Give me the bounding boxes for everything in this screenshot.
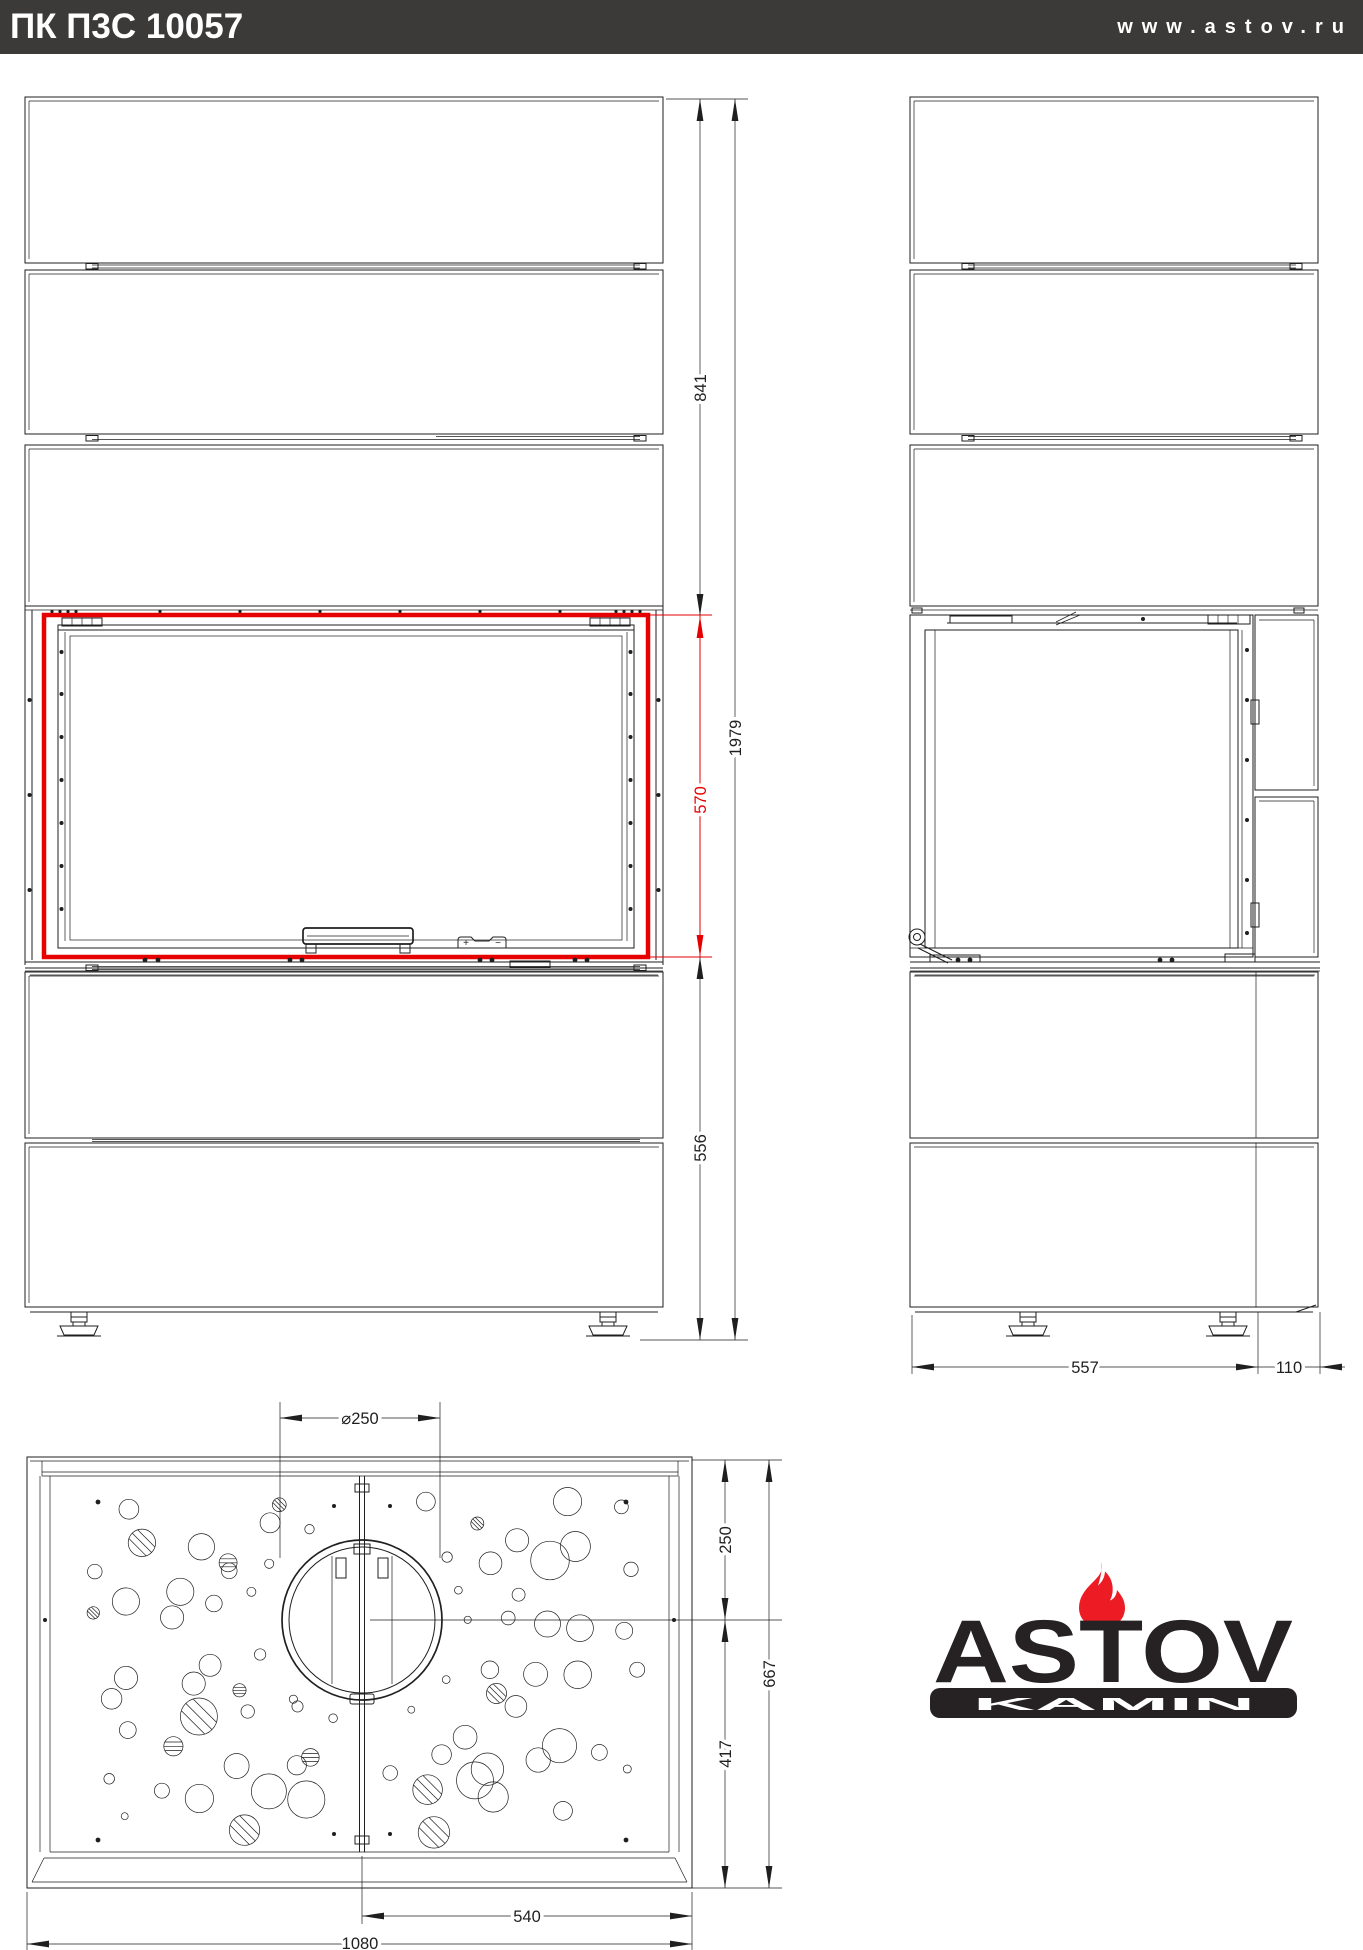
drawing-sheet: ПК П3С 10057 www.astov.ru — [0, 0, 1363, 1950]
dim-front-firebox: 570 — [692, 786, 710, 814]
door-handle — [303, 928, 413, 953]
dim-front-upper: 841 — [692, 374, 710, 402]
side-connectors — [962, 264, 1302, 442]
dim-front-overall: 1979 — [727, 720, 745, 757]
side-door-screws — [1245, 648, 1249, 935]
air-control: + − — [458, 937, 506, 949]
brand-logo: ASTOV KAMIN — [930, 1562, 1297, 1718]
side-view: 557 110 — [909, 97, 1345, 1377]
dim-plan-half-width: 540 — [513, 1908, 541, 1926]
dim-plan-center-to-back: 417 — [717, 1740, 735, 1768]
firebox-front: + − — [25, 606, 663, 975]
plan-view: ⌀250 250 417 667 540 1080 — [27, 1402, 782, 1950]
panel-connectors — [86, 264, 646, 1142]
air-minus-label: − — [495, 938, 501, 949]
front-feet — [57, 1312, 630, 1336]
top-screws — [50, 610, 641, 613]
dim-side-body-depth: 557 — [1071, 1359, 1099, 1377]
technical-drawing: + − — [0, 0, 1363, 1950]
dim-plan-front-to-center: 250 — [717, 1526, 735, 1554]
brand-subtitle: KAMIN — [973, 1694, 1255, 1714]
dim-plan-flue-diameter: ⌀250 — [341, 1410, 378, 1428]
front-view: + − — [25, 97, 748, 1340]
dim-plan-overall-depth: 667 — [761, 1660, 779, 1688]
dim-front-lower: 556 — [692, 1134, 710, 1162]
frame-screws — [28, 650, 661, 911]
rear-flue-column — [1251, 615, 1318, 957]
air-plus-label: + — [463, 938, 469, 949]
flue-collar — [282, 1540, 442, 1704]
glass-door-highlight — [44, 615, 648, 957]
side-feet — [1006, 1312, 1250, 1336]
firebox-side — [909, 612, 1320, 975]
brand-name: ASTOV — [933, 1601, 1293, 1701]
dim-plan-overall-width: 1080 — [342, 1935, 379, 1950]
dim-side-rear-depth: 110 — [1276, 1359, 1302, 1377]
side-dimensions: 557 110 — [912, 1312, 1345, 1377]
